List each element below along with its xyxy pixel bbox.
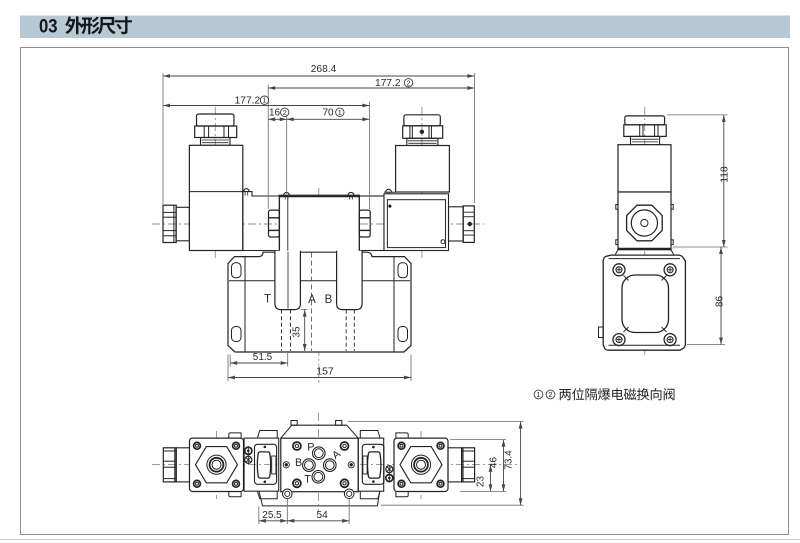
svg-text:1: 1 bbox=[338, 108, 342, 117]
svg-text:1: 1 bbox=[536, 390, 540, 399]
svg-text:86: 86 bbox=[714, 296, 725, 308]
svg-text:177.2: 177.2 bbox=[375, 78, 401, 89]
svg-text:23: 23 bbox=[476, 476, 487, 488]
svg-text:157: 157 bbox=[316, 366, 334, 378]
svg-text:73.4: 73.4 bbox=[504, 450, 515, 470]
svg-text:2: 2 bbox=[548, 390, 552, 399]
svg-text:A: A bbox=[308, 294, 316, 306]
svg-text:T: T bbox=[264, 294, 271, 306]
svg-text:1: 1 bbox=[263, 96, 267, 105]
svg-text:B: B bbox=[295, 457, 302, 469]
svg-text:25.5: 25.5 bbox=[262, 510, 282, 521]
svg-text:03: 03 bbox=[39, 16, 58, 38]
svg-text:2: 2 bbox=[407, 78, 411, 87]
svg-text:P: P bbox=[307, 442, 314, 454]
svg-text:118: 118 bbox=[719, 166, 730, 183]
svg-text:16: 16 bbox=[269, 108, 281, 119]
svg-text:35: 35 bbox=[291, 326, 302, 338]
svg-text:46: 46 bbox=[489, 457, 500, 469]
svg-text:70: 70 bbox=[322, 108, 334, 119]
svg-text:51.5: 51.5 bbox=[253, 352, 273, 363]
svg-text:54: 54 bbox=[317, 510, 329, 521]
svg-text:177.2: 177.2 bbox=[235, 96, 261, 107]
svg-text:268.4: 268.4 bbox=[311, 64, 337, 75]
svg-text:B: B bbox=[325, 294, 333, 306]
svg-text:2: 2 bbox=[283, 108, 287, 117]
svg-text:T: T bbox=[304, 473, 311, 485]
